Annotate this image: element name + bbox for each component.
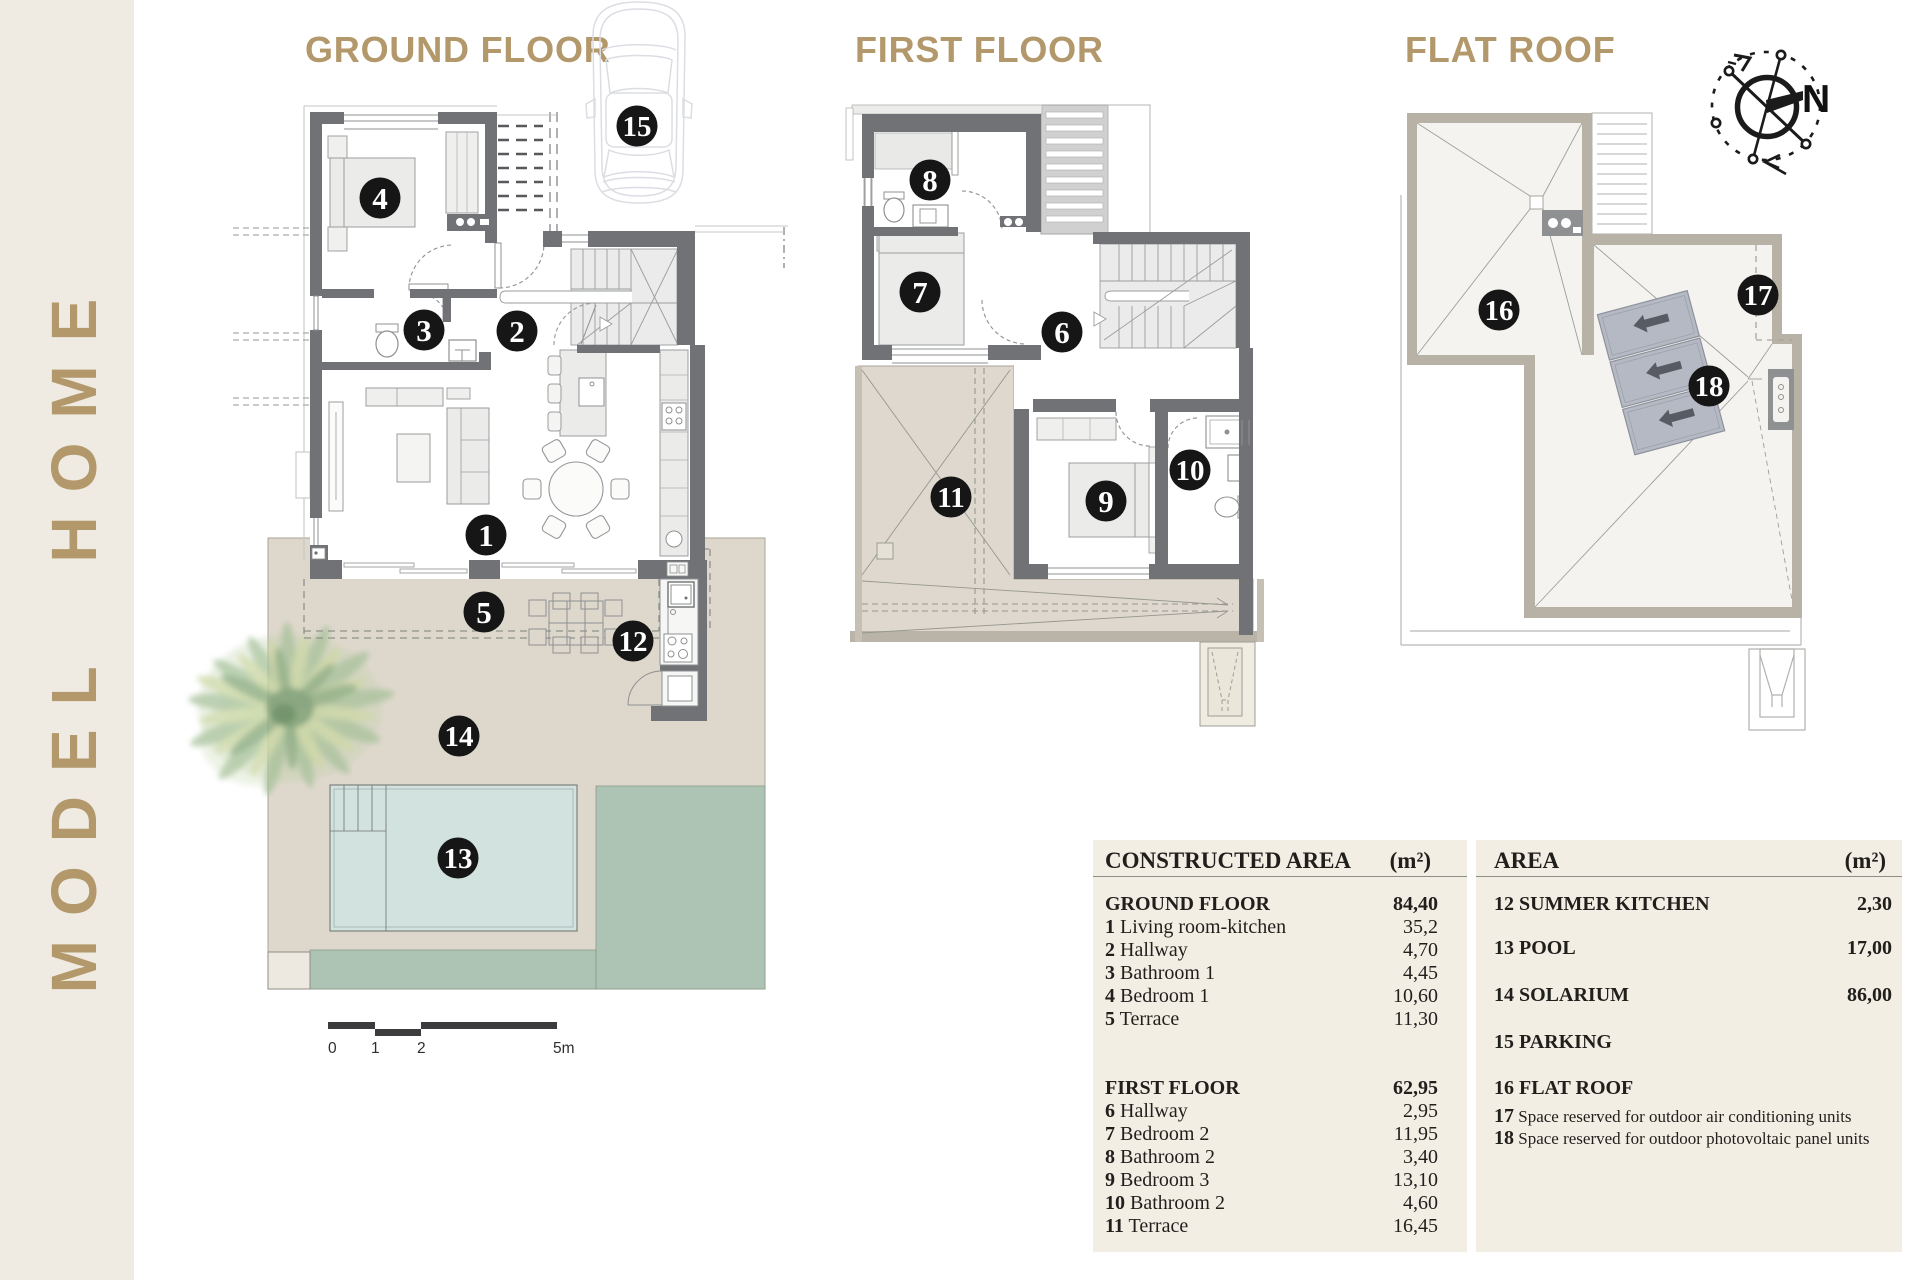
svg-text:6: 6: [1054, 315, 1070, 350]
svg-text:9: 9: [1098, 484, 1114, 519]
svg-text:0: 0: [328, 1040, 337, 1057]
svg-text:5m: 5m: [553, 1040, 575, 1057]
svg-text:10: 10: [1176, 455, 1205, 487]
svg-text:7: 7: [912, 275, 928, 310]
svg-text:17: 17: [1744, 280, 1773, 312]
svg-text:16: 16: [1485, 295, 1514, 327]
svg-text:N: N: [1802, 78, 1830, 121]
svg-text:15: 15: [623, 111, 652, 143]
svg-text:2: 2: [417, 1040, 426, 1057]
svg-text:3: 3: [416, 313, 432, 348]
svg-text:4: 4: [372, 181, 388, 216]
svg-text:12: 12: [619, 626, 648, 658]
svg-text:5: 5: [476, 595, 492, 630]
svg-text:1: 1: [371, 1040, 380, 1057]
svg-text:8: 8: [922, 163, 938, 198]
svg-text:18: 18: [1695, 371, 1724, 403]
svg-text:1: 1: [478, 518, 494, 553]
svg-text:14: 14: [445, 721, 474, 753]
svg-text:11: 11: [937, 482, 964, 514]
svg-text:13: 13: [444, 843, 473, 875]
svg-text:2: 2: [509, 314, 525, 349]
